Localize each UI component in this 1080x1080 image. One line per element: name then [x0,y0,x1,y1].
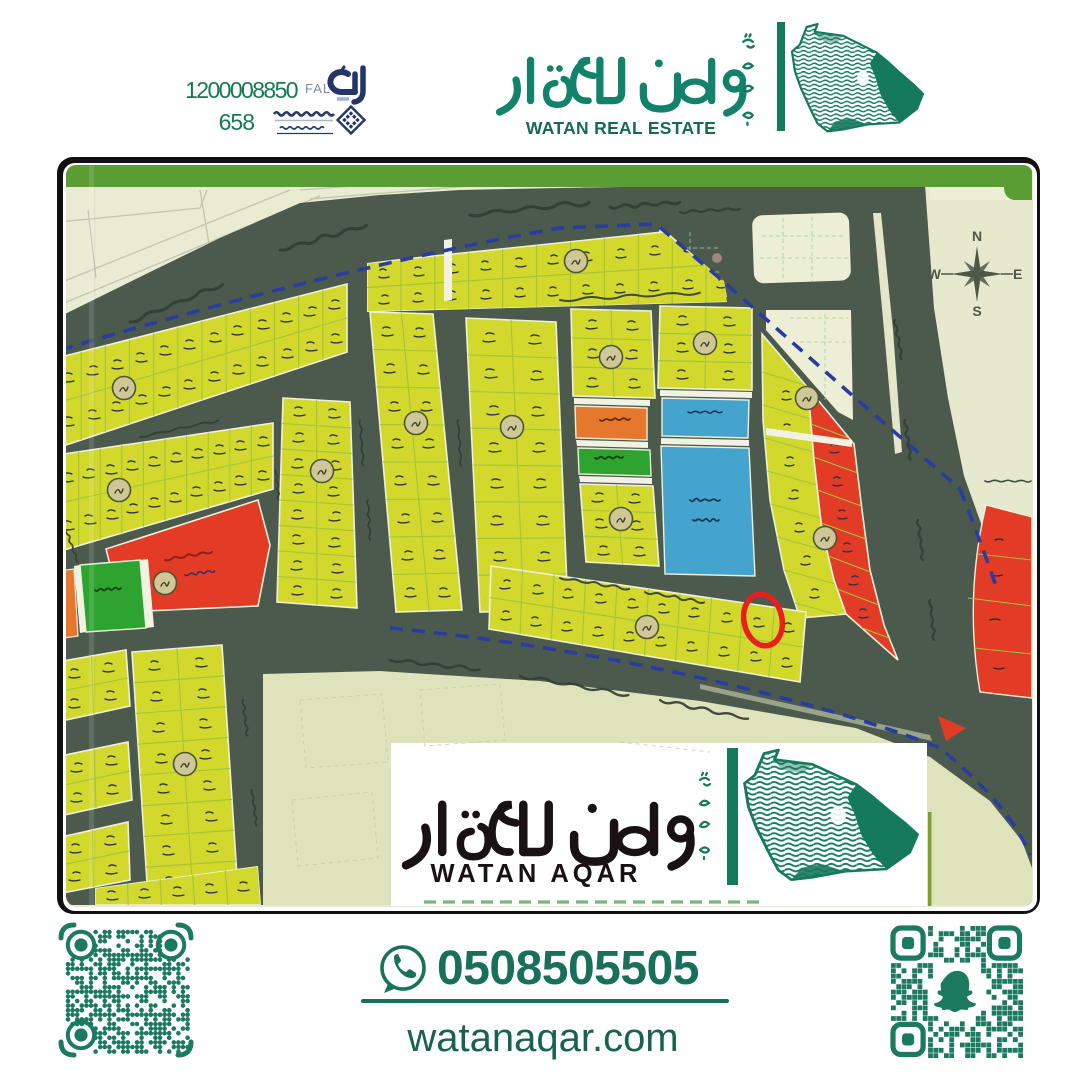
svg-text:FAL: FAL [305,81,331,96]
svg-text:WATAN AQAR: WATAN AQAR [431,860,642,888]
svg-text:S: S [972,303,981,319]
svg-text:WATAN REAL ESTATE: WATAN REAL ESTATE [526,118,716,138]
svg-text:E: E [1013,266,1022,282]
svg-text:0508505505: 0508505505 [437,942,699,995]
svg-text:1200008850: 1200008850 [185,77,298,103]
svg-text:658: 658 [219,109,255,135]
svg-text:W: W [928,266,942,282]
svg-text:watanaqar.com: watanaqar.com [406,1016,678,1060]
svg-text:N: N [972,228,982,244]
